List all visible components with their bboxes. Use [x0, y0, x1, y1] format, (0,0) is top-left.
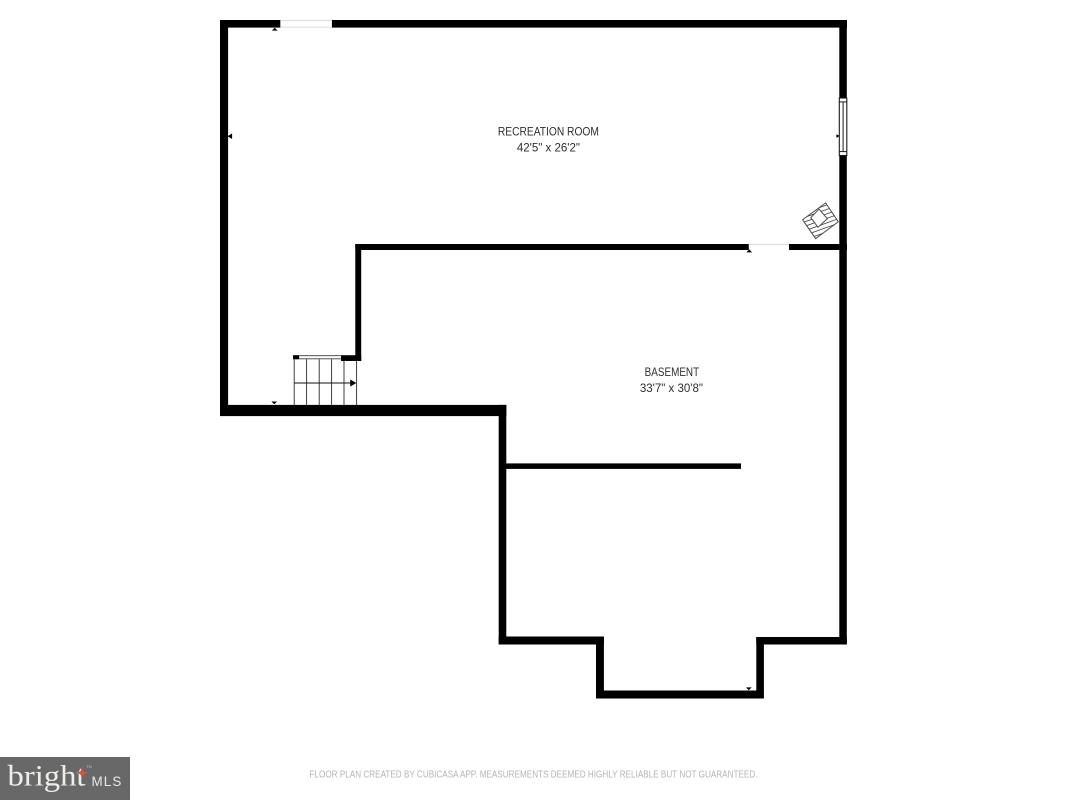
svg-text:TM: TM — [86, 764, 91, 769]
svg-text:FLOOR PLAN CREATED BY CUBICASA: FLOOR PLAN CREATED BY CUBICASA APP. MEAS… — [310, 769, 758, 780]
svg-text:33'7" x 30'8": 33'7" x 30'8" — [640, 383, 703, 395]
svg-text:MLS: MLS — [92, 774, 123, 790]
svg-text:42'5" x 26'2": 42'5" x 26'2" — [517, 143, 580, 155]
svg-text:bright: bright — [8, 760, 87, 793]
svg-text:BASEMENT: BASEMENT — [645, 367, 700, 379]
svg-text:RECREATION ROOM: RECREATION ROOM — [498, 127, 599, 139]
